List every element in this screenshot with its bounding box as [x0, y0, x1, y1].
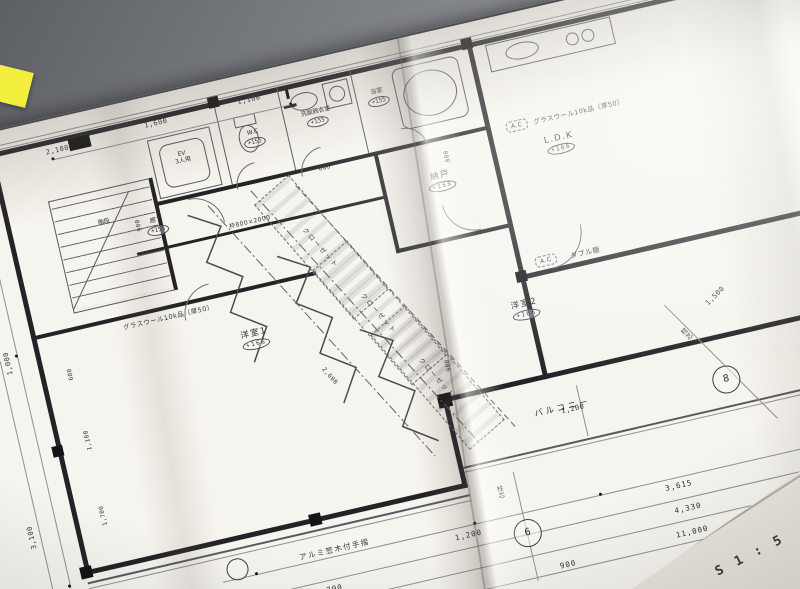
- dim-text: 1,100: [82, 429, 93, 451]
- column: [308, 512, 322, 526]
- insulation-text: グラスウール10k品（厚50）: [533, 98, 625, 127]
- dim-left: 1,000: [2, 351, 15, 376]
- room-label-bath: 浴室 +155: [352, 82, 403, 112]
- dim-text: 11,000: [675, 523, 709, 539]
- column-axis-annotation: 柱芯: [493, 484, 506, 500]
- column: [207, 96, 220, 109]
- grid-line: [664, 305, 778, 419]
- dim-text: 1,500: [704, 285, 726, 307]
- handrail-line: [88, 494, 470, 584]
- dim-bottom: 4,330: [674, 500, 703, 515]
- dim-text: 600: [66, 368, 76, 382]
- dim-right: 1,500: [704, 285, 726, 307]
- dim-text: 3,100: [25, 525, 38, 550]
- dim-top: 2,100: [45, 144, 70, 157]
- door-arc: [296, 147, 326, 177]
- column: [79, 565, 93, 579]
- grid-bubble-blank: [224, 556, 250, 582]
- dim-text: 1,200: [454, 527, 483, 542]
- dim-inner: 1,100: [82, 429, 93, 451]
- grid-bubble-8-label: 8: [722, 373, 730, 385]
- insulation-annotation: グラスウール10k品（厚50）: [532, 96, 625, 127]
- dim-text: 4,330: [674, 500, 703, 515]
- photo-scene: クローゼット クローゼット クローゼット: [0, 0, 800, 589]
- dim-bottom: 3,615: [664, 478, 693, 493]
- dim-inner: 600: [66, 368, 76, 382]
- grid-bubble-6: 6: [511, 516, 545, 550]
- ac-annotation: A.C: [505, 118, 529, 134]
- ac-text: A.C: [539, 256, 552, 265]
- dim-dot: [51, 157, 55, 161]
- dim-inner: 1,700: [98, 505, 109, 527]
- dim-text: 1,700: [98, 505, 109, 527]
- grid-bubble-6-label: 6: [524, 527, 532, 539]
- column-axis-text: 柱芯: [494, 485, 505, 500]
- dim-bottom: 11,000: [675, 523, 709, 539]
- scale-text: S 1 : 5: [713, 532, 787, 580]
- dim-text: 3,615: [664, 478, 693, 493]
- room-label-ldk: L.D.K +166: [524, 125, 597, 161]
- ac-text: A.C: [510, 121, 523, 130]
- door-arc: [232, 162, 260, 190]
- dim-text: 1,000: [2, 351, 15, 376]
- handrail-line: [89, 500, 471, 589]
- grid-bubble-8: 8: [710, 363, 744, 397]
- dim-left: 3,100: [25, 525, 38, 550]
- stairs-label: 階段: [97, 217, 110, 227]
- dim-text: 2,100: [45, 144, 70, 157]
- dim-bottom: 1,200: [454, 527, 483, 542]
- scale-value: S 1 : 5: [713, 532, 787, 580]
